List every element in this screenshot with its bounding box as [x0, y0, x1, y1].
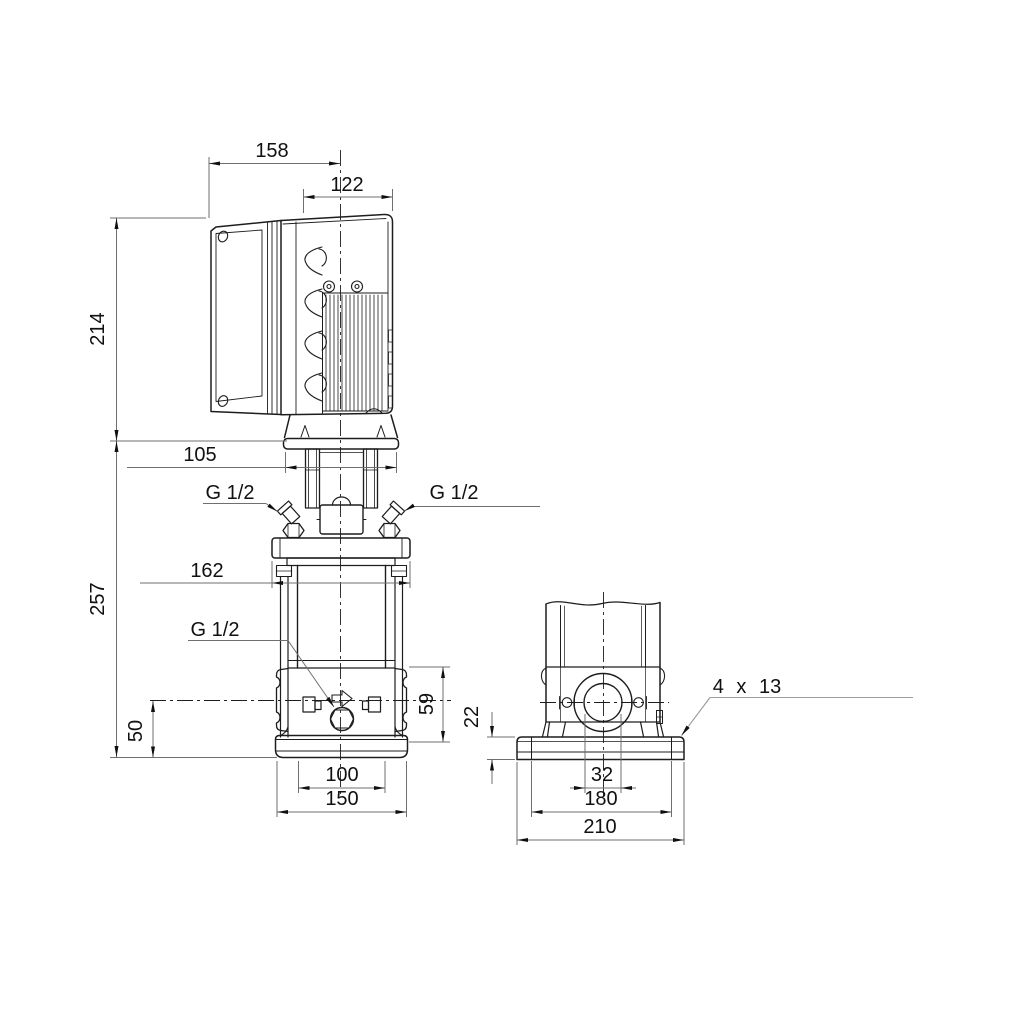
dim-foot-holes-spacing-label: 100	[325, 764, 358, 786]
dim-drain-height-label: 50	[125, 720, 147, 742]
dim-port-height-label: 59	[416, 693, 438, 715]
dim-bolt-spacing-label: 180	[584, 788, 617, 810]
dim-motor-width-label: 122	[330, 174, 363, 196]
drain-label: G 1/2	[191, 619, 240, 641]
drawing-background	[0, 0, 1024, 1024]
dim-motor-height-label: 214	[87, 312, 109, 345]
pump-dimensional-drawing: 158 122 214 105 257 162 59 50 100 150 G …	[0, 0, 1024, 1024]
dim-foot-width-label: 150	[325, 788, 358, 810]
dim-fan-cover-width-label: 105	[183, 444, 216, 466]
vent-left-label: G 1/2	[206, 482, 255, 504]
dim-baseplate-height-label: 22	[461, 706, 483, 728]
dim-pump-height-label: 257	[87, 582, 109, 615]
vent-right-label: G 1/2	[430, 482, 479, 504]
dim-flange-width-label: 162	[190, 560, 223, 582]
dim-baseplate-width-label: 210	[583, 816, 616, 838]
mounting-holes-label: 4 x 13	[713, 676, 781, 698]
dim-overall-depth-label: 158	[255, 140, 288, 162]
dim-port-bore-label: 32	[591, 764, 613, 786]
